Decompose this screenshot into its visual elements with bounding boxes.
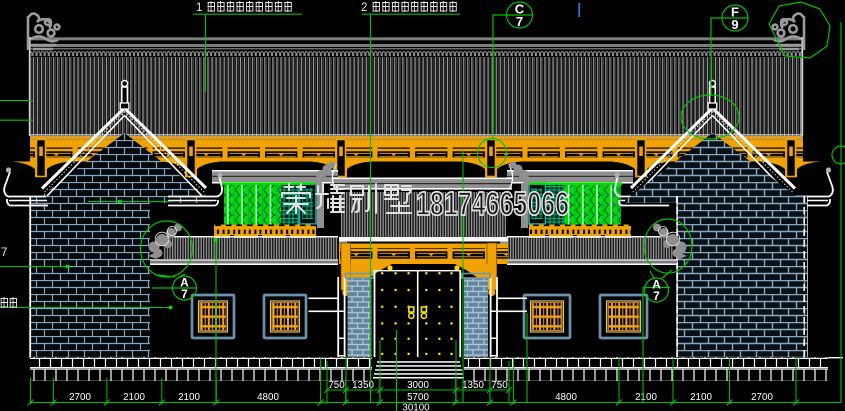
svg-text:4800: 4800 — [555, 392, 577, 403]
svg-text:7: 7 — [653, 289, 660, 303]
svg-text:750: 750 — [328, 380, 345, 391]
svg-text:2100: 2100 — [178, 392, 200, 403]
svg-text:7: 7 — [1, 247, 7, 259]
svg-text:1: 1 — [196, 2, 202, 14]
svg-text:2700: 2700 — [69, 392, 91, 403]
svg-text:2100: 2100 — [690, 392, 712, 403]
svg-text:5700: 5700 — [407, 392, 429, 403]
svg-text:3000: 3000 — [407, 380, 429, 391]
svg-text:2100: 2100 — [123, 392, 145, 403]
svg-text:30100: 30100 — [402, 403, 430, 411]
svg-text:4800: 4800 — [257, 392, 279, 403]
svg-text:9: 9 — [731, 17, 738, 32]
svg-text:1350: 1350 — [352, 380, 374, 391]
svg-text:7: 7 — [181, 287, 188, 301]
svg-text:18174665066: 18174665066 — [416, 185, 569, 222]
svg-text:1350: 1350 — [462, 380, 484, 391]
svg-text:750: 750 — [491, 380, 508, 391]
svg-text:7: 7 — [516, 14, 523, 29]
svg-text:2100: 2100 — [635, 392, 657, 403]
svg-text:2: 2 — [361, 2, 367, 14]
svg-text:2700: 2700 — [751, 392, 773, 403]
